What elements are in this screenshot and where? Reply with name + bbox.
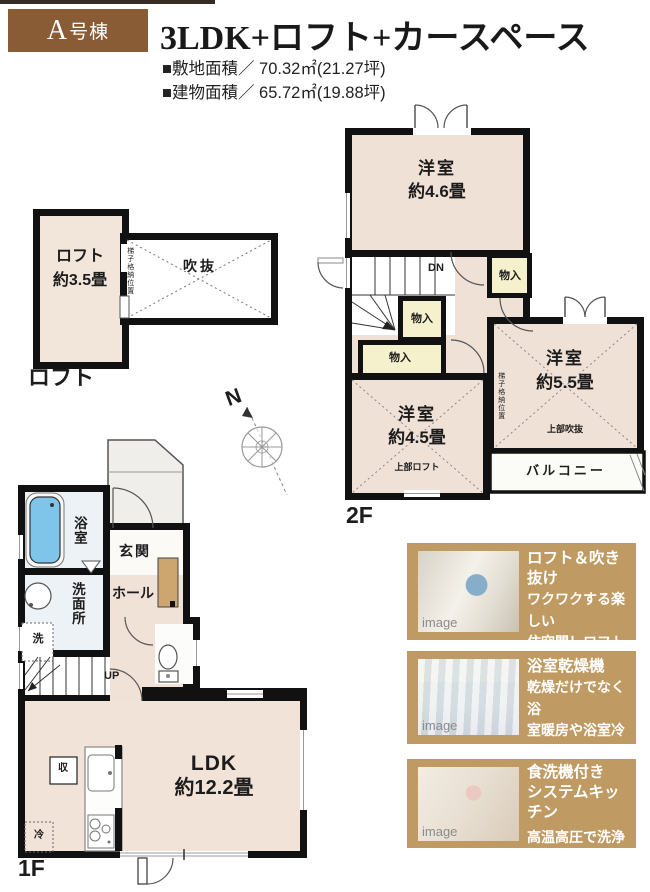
floor2-label: 2F — [346, 503, 373, 528]
ldk-size: 約12.2畳 — [175, 777, 254, 799]
balcony-label: バルコニー — [526, 464, 606, 478]
page-title: 3LDK+ロフト+カースペース — [160, 10, 590, 59]
entrance-porch — [108, 440, 183, 532]
flyer-page: A 号棟 3LDK+ロフト+カースペース ■敷地面積／ 70.32㎡(21.27… — [0, 0, 650, 892]
bathtub — [26, 493, 64, 567]
loft-floor-label: ロフト — [28, 366, 94, 390]
shoe-cabinet — [158, 558, 178, 607]
washroom-label: 洗面所 — [69, 582, 84, 626]
fridge-label: 冷 — [34, 830, 44, 841]
image-watermark: image — [422, 824, 457, 839]
feature-title: ロフト＆吹き抜け — [527, 549, 632, 589]
feature-card-bath-dryer: image 浴室乾燥機 乾燥だけでなく浴 室暖房や浴室冷房 と充実の機能。 — [407, 651, 636, 744]
upper-loft-note: 上部ロフト — [394, 463, 439, 473]
feature-title: 浴室乾燥機 — [527, 657, 632, 677]
feature-line: 乾燥だけでなく浴 — [527, 677, 632, 720]
kitchen-counter — [85, 745, 122, 851]
site-area-text: ■敷地面積／ 70.32㎡(21.27坪) — [162, 55, 386, 79]
feature-photo-kitchen: image — [418, 767, 519, 841]
closet-1-label: 物入 — [499, 270, 521, 282]
loft-room-name: ロフト — [56, 248, 104, 266]
room-4-5-size: 約4.5畳 — [388, 429, 446, 448]
badge-letter: A — [47, 15, 67, 47]
ldk-name: LDK — [191, 752, 237, 775]
loft-ladder-note: 梯子格納位置 — [126, 247, 134, 295]
feature-title: 食洗機付き — [527, 763, 632, 783]
stairs-down-label: DN — [428, 262, 444, 274]
top-accent-strip — [0, 0, 215, 4]
building-badge: A 号棟 — [8, 9, 148, 52]
void-label: 吹抜 — [183, 259, 217, 274]
feature-line: 室暖房や浴室冷房 — [527, 720, 632, 763]
closet-2-label: 物入 — [411, 313, 433, 325]
image-watermark: image — [422, 615, 457, 630]
room-4-6-size: 約4.6畳 — [408, 183, 466, 202]
feature-photo-loft: image — [418, 551, 519, 632]
feature-card-loft: image ロフト＆吹き抜け ワクワクする楽しい 住空間！ロフトが あるプラン。 — [407, 543, 636, 640]
floor1-label: 1F — [18, 856, 45, 881]
room-4-6-name: 洋室 — [418, 160, 456, 179]
feature-line: ワクワクする楽しい — [527, 589, 632, 632]
bath-label: 浴室 — [71, 516, 86, 545]
upper-void-note: 上部吹抜 — [547, 425, 583, 435]
wash-basin — [25, 583, 51, 609]
entrance-label: 玄関 — [119, 544, 151, 559]
feature-photo-bath-dryer: image — [418, 659, 519, 735]
feature-line: 高温高圧で洗浄して — [527, 827, 632, 870]
stairs-up-label: UP — [104, 670, 119, 682]
room-5-5-size: 約5.5畳 — [536, 374, 594, 393]
closet-3-label: 物入 — [389, 352, 411, 364]
feature-card-kitchen: image 食洗機付き システムキッチン 高温高圧で洗浄して 乾燥までお任せ！ — [407, 759, 636, 848]
room-5-5-name: 洋室 — [546, 350, 584, 369]
badge-suffix: 号棟 — [69, 17, 109, 44]
washer-label: 洗 — [33, 633, 44, 645]
toilet — [159, 645, 178, 682]
ladder-note-2f: 梯子格納位置 — [497, 372, 505, 420]
room-4-5-name: 洋室 — [398, 406, 436, 425]
image-watermark: image — [422, 718, 457, 733]
compass-arrow — [242, 407, 253, 418]
first-floor-plan — [10, 435, 320, 892]
storage-label: 収 — [58, 763, 68, 774]
feature-title-line2: システムキッチン — [527, 783, 632, 823]
loft-room-size: 約3.5畳 — [53, 272, 107, 290]
feature-line: 乾燥までお任せ！ — [527, 870, 632, 892]
hall-label: ホール — [112, 586, 154, 601]
